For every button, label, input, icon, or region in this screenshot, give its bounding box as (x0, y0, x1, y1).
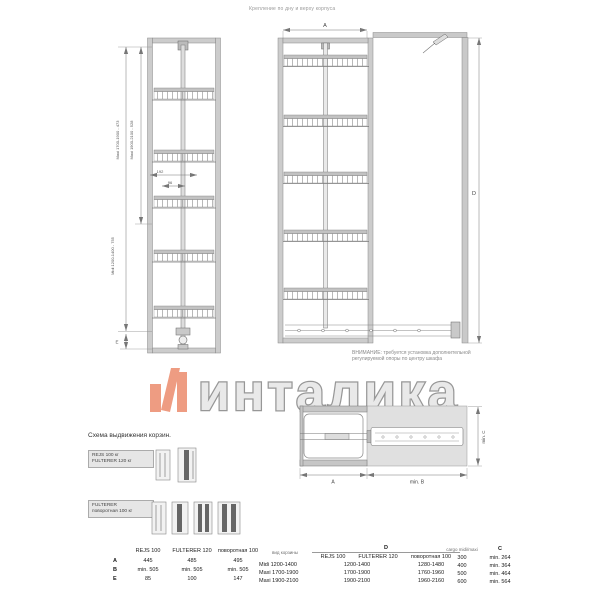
rotary-icon-stage-4 (218, 502, 240, 534)
open-basket-5 (283, 288, 369, 300)
watermark-logo (146, 364, 198, 418)
open-basket-2 (283, 115, 369, 127)
open-basket-3 (283, 172, 369, 184)
table-header-cell: вид корзины (258, 544, 312, 561)
logo-bar-right (177, 372, 187, 412)
rotary-icon-stage-2 (172, 502, 188, 534)
cabinet-open-drawing: A (265, 12, 490, 367)
dim-label-midi: Midi 1200-1400 - 755 (110, 236, 115, 275)
scheme-label-1-line-2: FULTERER 120 кг (92, 459, 150, 465)
table-cell: 1200-1400 (312, 561, 402, 569)
dim-label-96: 96 (168, 180, 173, 185)
open-pullout-column (324, 43, 328, 328)
table-cell: min. 464 (483, 570, 517, 578)
table-cell: 400 (441, 562, 483, 570)
table-cell: min. 505 (128, 565, 168, 574)
table-header-cell (112, 545, 128, 556)
table-cell: 85 (128, 574, 168, 583)
scheme-title: Схема выдвижения корзин. (88, 432, 171, 439)
table-row-label: A (112, 556, 128, 565)
open-basket-1 (283, 55, 369, 67)
basket-level-3 (152, 196, 216, 208)
basket-level-1 (152, 88, 216, 100)
dim-label-min-b: min. B (410, 480, 425, 486)
open-carcass-right (368, 38, 373, 343)
table-row-label: Maxi 1900-2100 (258, 577, 312, 585)
dims-table: REJS 100 FULTERER 120 поворотная 100 A 4… (112, 545, 260, 583)
dim-label-maxi-1700: Maxi 1700-1900 - 473 (115, 120, 120, 160)
table-cell: 300 (441, 554, 483, 562)
table-cell: 495 (216, 556, 260, 565)
dim-label-a: A (323, 23, 327, 29)
scheme-label-2-line-2: поворотная 100 кг (92, 509, 150, 515)
door-panel (462, 38, 468, 344)
table-cell: 1700-1900 (312, 569, 402, 577)
carcass-side-right (216, 38, 221, 353)
table-cell: 445 (128, 556, 168, 565)
open-carcass-top (283, 38, 368, 43)
rotary-icon-stage-1 (152, 502, 166, 534)
dim-label-plan-a: A (331, 480, 335, 486)
scheme-icons-row-2 (150, 496, 246, 538)
table-header-cell: REJS 100 (312, 553, 354, 561)
basket-level-2 (152, 150, 216, 162)
dim-label-d: D (472, 191, 476, 197)
cargo-table: cargo midi/maxi C 300 min. 264 400 min. … (441, 544, 517, 586)
table-cell: min. 364 (483, 562, 517, 570)
table-header-cell: поворотная 100 (216, 545, 260, 556)
table-header-cell: C (483, 544, 517, 554)
scheme-label-rejs-fulterer: REJS 100 кг FULTERER 120 кг (88, 450, 154, 468)
table-cell: 485 (168, 556, 216, 565)
dim-label-e: E (115, 340, 118, 345)
bottom-guide-mechanism (176, 328, 190, 349)
warning-note: ВНИМАНИЕ: требуется установка дополнител… (352, 350, 487, 362)
heights-table: вид корзины D REJS 100 FULTERER 120 пово… (258, 544, 460, 585)
cabinet-section-drawing: Maxi 1700-1900 - 473 Maxi 1900-2100 - 52… (90, 28, 235, 362)
table-row-label: B (112, 565, 128, 574)
table-cell: min. 264 (483, 554, 517, 562)
table-cell: 100 (168, 574, 216, 583)
table-header-cell: D (312, 544, 460, 553)
table-cell: min. 564 (483, 578, 517, 586)
table-cell: min. 505 (216, 565, 260, 574)
basket-level-5 (152, 306, 216, 318)
table-cell: 600 (441, 578, 483, 586)
table-header-cell: cargo midi/maxi (441, 544, 483, 554)
open-basket-4 (283, 230, 369, 242)
warning-line-2: регулируемой опоры по центру шкафа (352, 356, 487, 362)
dim-label-192: 192 (157, 169, 164, 174)
scheme-icons-row-1 (154, 446, 202, 484)
table-header-cell: REJS 100 (128, 545, 168, 556)
table-row-label: Maxi 1700-1900 (258, 569, 312, 577)
table-header-cell: FULTERER 120 (354, 553, 402, 561)
dim-label-maxi-1900: Maxi 1900-2100 - 528 (129, 120, 134, 160)
extended-slide (367, 428, 463, 446)
scheme-label-fulterer-rotary: FULTERER поворотная 100 кг (88, 500, 154, 518)
carcass-side-left (148, 38, 153, 353)
table-cell: 1900-2100 (312, 577, 402, 585)
dim-label-min-c: min. C (481, 430, 486, 444)
door-top-rail (373, 33, 467, 38)
scheme-icon-closed (156, 450, 170, 480)
table-row-label: E (112, 574, 128, 583)
scheme-icon-extended (178, 448, 196, 482)
basket-level-4 (152, 250, 216, 262)
table-row-label: Midi 1200-1400 (258, 561, 312, 569)
basket-plan (300, 406, 367, 466)
basket-plan-drawing: min. C A min. B (295, 400, 495, 488)
rotary-icon-stage-3 (194, 502, 212, 534)
table-cell: 500 (441, 570, 483, 578)
open-carcass-left (278, 38, 283, 343)
logo-bar-left (150, 384, 161, 412)
table-header-cell: FULTERER 120 (168, 545, 216, 556)
open-carcass-bottom (283, 338, 368, 343)
table-cell: min. 505 (168, 565, 216, 574)
catalog-page: инталика Крепление по дну и верху корпус… (0, 0, 600, 600)
table-cell: 147 (216, 574, 260, 583)
